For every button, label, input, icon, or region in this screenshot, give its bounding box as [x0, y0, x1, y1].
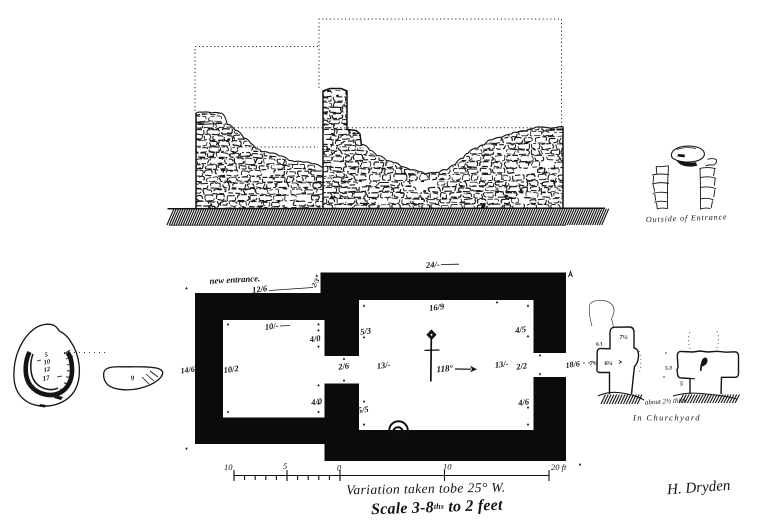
svg-text:4/0: 4/0 [308, 333, 322, 345]
svg-text:18/6: 18/6 [565, 359, 580, 370]
svg-text:5/3: 5/3 [360, 325, 373, 337]
svg-text:13/-: 13/- [494, 358, 509, 370]
svg-text:9: 9 [130, 374, 135, 382]
svg-text:5.3: 5.3 [665, 366, 672, 372]
svg-text:5/5: 5/5 [357, 404, 370, 416]
svg-text:5: 5 [680, 382, 683, 388]
svg-text:new entrance.: new entrance. [209, 273, 260, 286]
svg-text:6.3: 6.3 [596, 343, 603, 348]
svg-text:2/6: 2/6 [337, 360, 351, 372]
svg-text:14/6: 14/6 [180, 365, 195, 376]
svg-text:Variation taken tobe 25° W.: Variation taken tobe 25° W. [346, 480, 506, 498]
svg-text:4/0: 4/0 [310, 396, 324, 408]
svg-text:13/-: 13/- [376, 359, 391, 371]
svg-text:7½: 7½ [620, 334, 628, 341]
svg-text:about 2½ thick: about 2½ thick [645, 396, 688, 406]
svg-text:16/9: 16/9 [428, 301, 445, 313]
svg-text:6¼: 6¼ [605, 360, 613, 367]
svg-text:4/6: 4/6 [517, 396, 531, 408]
svg-text:In Churchyard: In Churchyard [632, 413, 701, 423]
svg-text:4/5: 4/5 [514, 324, 528, 336]
svg-text:20 ft: 20 ft [551, 462, 567, 472]
svg-text:12: 12 [43, 366, 51, 374]
svg-text:10: 10 [43, 358, 51, 366]
svg-text:10/2: 10/2 [223, 363, 240, 375]
svg-text:Scale 3-8ths to 2 feet: Scale 3-8ths to 2 feet [371, 497, 503, 519]
svg-text:0: 0 [337, 463, 342, 473]
svg-text:H. Dryden: H. Dryden [666, 478, 731, 498]
svg-text:7¼: 7¼ [590, 360, 598, 367]
svg-text:2/2: 2/2 [515, 360, 529, 372]
svg-text:10: 10 [224, 462, 233, 472]
svg-text:Outside of Entrance: Outside of Entrance [646, 212, 728, 224]
svg-text:17: 17 [42, 374, 51, 383]
svg-text:10: 10 [443, 462, 452, 472]
svg-text:5: 5 [283, 461, 287, 471]
svg-text:118°: 118° [436, 363, 454, 374]
svg-text:24/-: 24/- [425, 259, 441, 270]
svg-text:10/-: 10/- [264, 320, 279, 332]
